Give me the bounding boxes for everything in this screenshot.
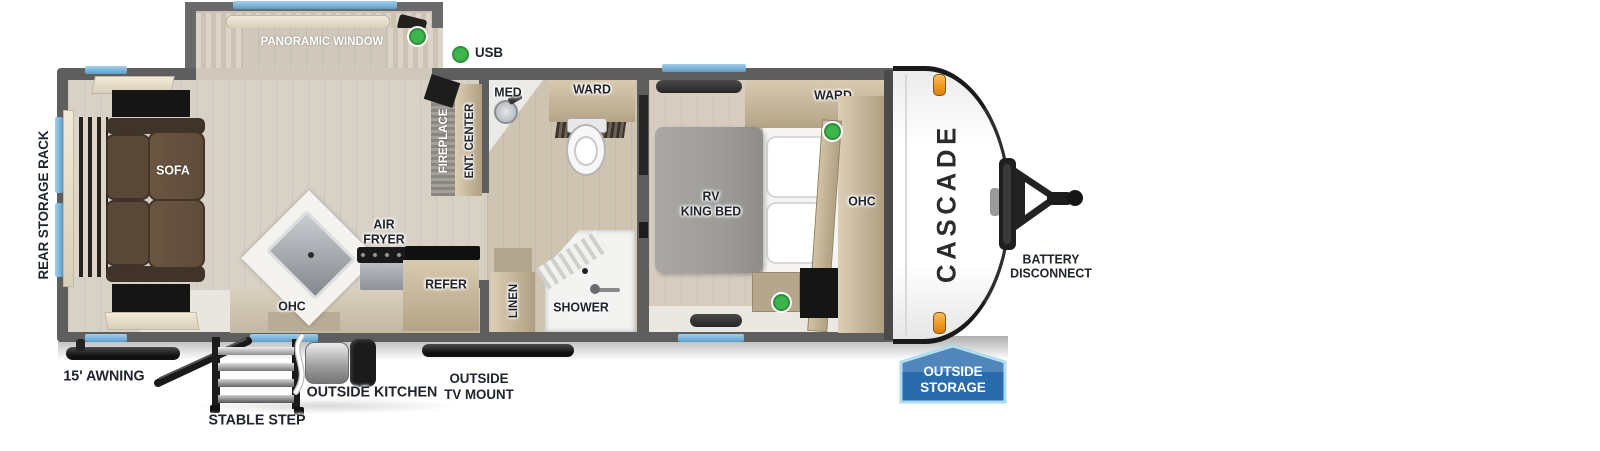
window-rear-wall-2 [55,203,63,277]
window-top-rear [85,66,127,74]
linen-label: LINEN [507,284,519,318]
step-tread-3 [218,379,294,387]
slat-rail [63,110,74,287]
shower-drain [582,268,588,274]
bedroom-ohc-cabinet [838,96,884,333]
usb-indicator-bedroom-top [824,123,841,140]
med-label: MED [494,86,521,99]
panoramic-window-label: PANORAMIC WINDOW [261,35,384,47]
outside-storage-label-2: STORAGE [920,380,986,394]
kitchen-ohc-label: OHC [278,300,305,313]
marker-light-bottom [933,312,946,334]
sofa-seat-2 [106,200,150,266]
step-tread-2 [218,363,294,371]
bath-ward-label: WARD [573,83,611,96]
ent-center-label: ENT. CENTER [463,104,475,179]
outside-kitchen-case [350,339,376,387]
awning-label: 15' AWNING [63,369,144,384]
linen-upper-cabinet [494,248,532,272]
marker-light-top [933,74,946,96]
refrigerator [403,260,479,331]
shower-knob [590,284,600,294]
tv-mount-label-2: TV MOUNT [444,387,513,401]
bed-label-2: KING BED [681,205,741,218]
bedroom-window-shade-top [656,80,742,93]
rear-storage-rack-label: REAR STORAGE RACK [36,130,50,279]
bath-wall-lower [479,280,489,333]
slideout-window [233,1,397,9]
awning-arm-left [76,339,85,351]
med-sink [494,100,518,124]
outside-storage-label-1: OUTSIDE [923,364,982,378]
refer-label: REFER [425,278,467,291]
sink-drain [308,252,314,258]
usb-indicator-icon [409,28,426,45]
toilet-seat [574,136,598,166]
outside-kitchen-griddle [305,342,349,384]
window-top-bedroom [662,64,746,72]
sofa-back-2 [148,199,205,269]
window-bottom-rear [85,334,127,342]
tv-mount-label-1: OUTSIDE [449,371,508,385]
cap-seam [905,74,907,336]
sofa-seat-1 [106,134,150,200]
fireplace-label: FIREPLACE [437,109,449,174]
dinette-back-cushion [226,15,390,29]
murphy-bed-slats [70,117,108,277]
usb-indicator-bedroom-bottom [773,294,790,311]
stable-step-label: STABLE STEP [208,413,305,428]
bedroom-door-pocket [639,95,648,175]
step-tread-4 [218,395,294,403]
window-bottom-bedroom [678,334,744,342]
slideout-left-wall [185,2,196,72]
step-tread-1 [218,347,294,355]
air-fryer-label-1: AIR [373,218,394,231]
bedroom-ohc-label: OHC [848,195,875,208]
bed-label-1: RV [703,190,720,203]
usb-legend-label: USB [475,45,503,59]
usb-legend-icon [452,46,469,63]
shower-label: SHOWER [553,301,609,314]
end-table-bottom [112,284,190,312]
bedroom-door-pocket-2 [639,222,648,238]
outside-kitchen-label: OUTSIDE KITCHEN [307,385,438,400]
rear-shelf-bottom [104,312,199,330]
bedroom-tv [800,268,838,318]
window-rear-wall-1 [55,117,63,193]
floorplan-canvas: DINETTE PANORAMIC WINDOW USB SOFA REFER … [0,0,1600,451]
battery-disconnect-label-2: DISCONNECT [1010,267,1092,280]
brand-logo: CASCADE [934,123,961,283]
air-fryer-label-2: FRYER [363,233,404,246]
end-table-top [112,90,190,117]
sofa-label: SOFA [156,164,190,177]
hitch-assembly [985,150,1095,260]
battery-disconnect-label-1: BATTERY [1023,253,1080,266]
refrigerator-top [405,246,480,260]
awning-roller-right [422,344,574,357]
range-front [360,263,405,290]
bedroom-window-shade-bottom [690,314,742,327]
